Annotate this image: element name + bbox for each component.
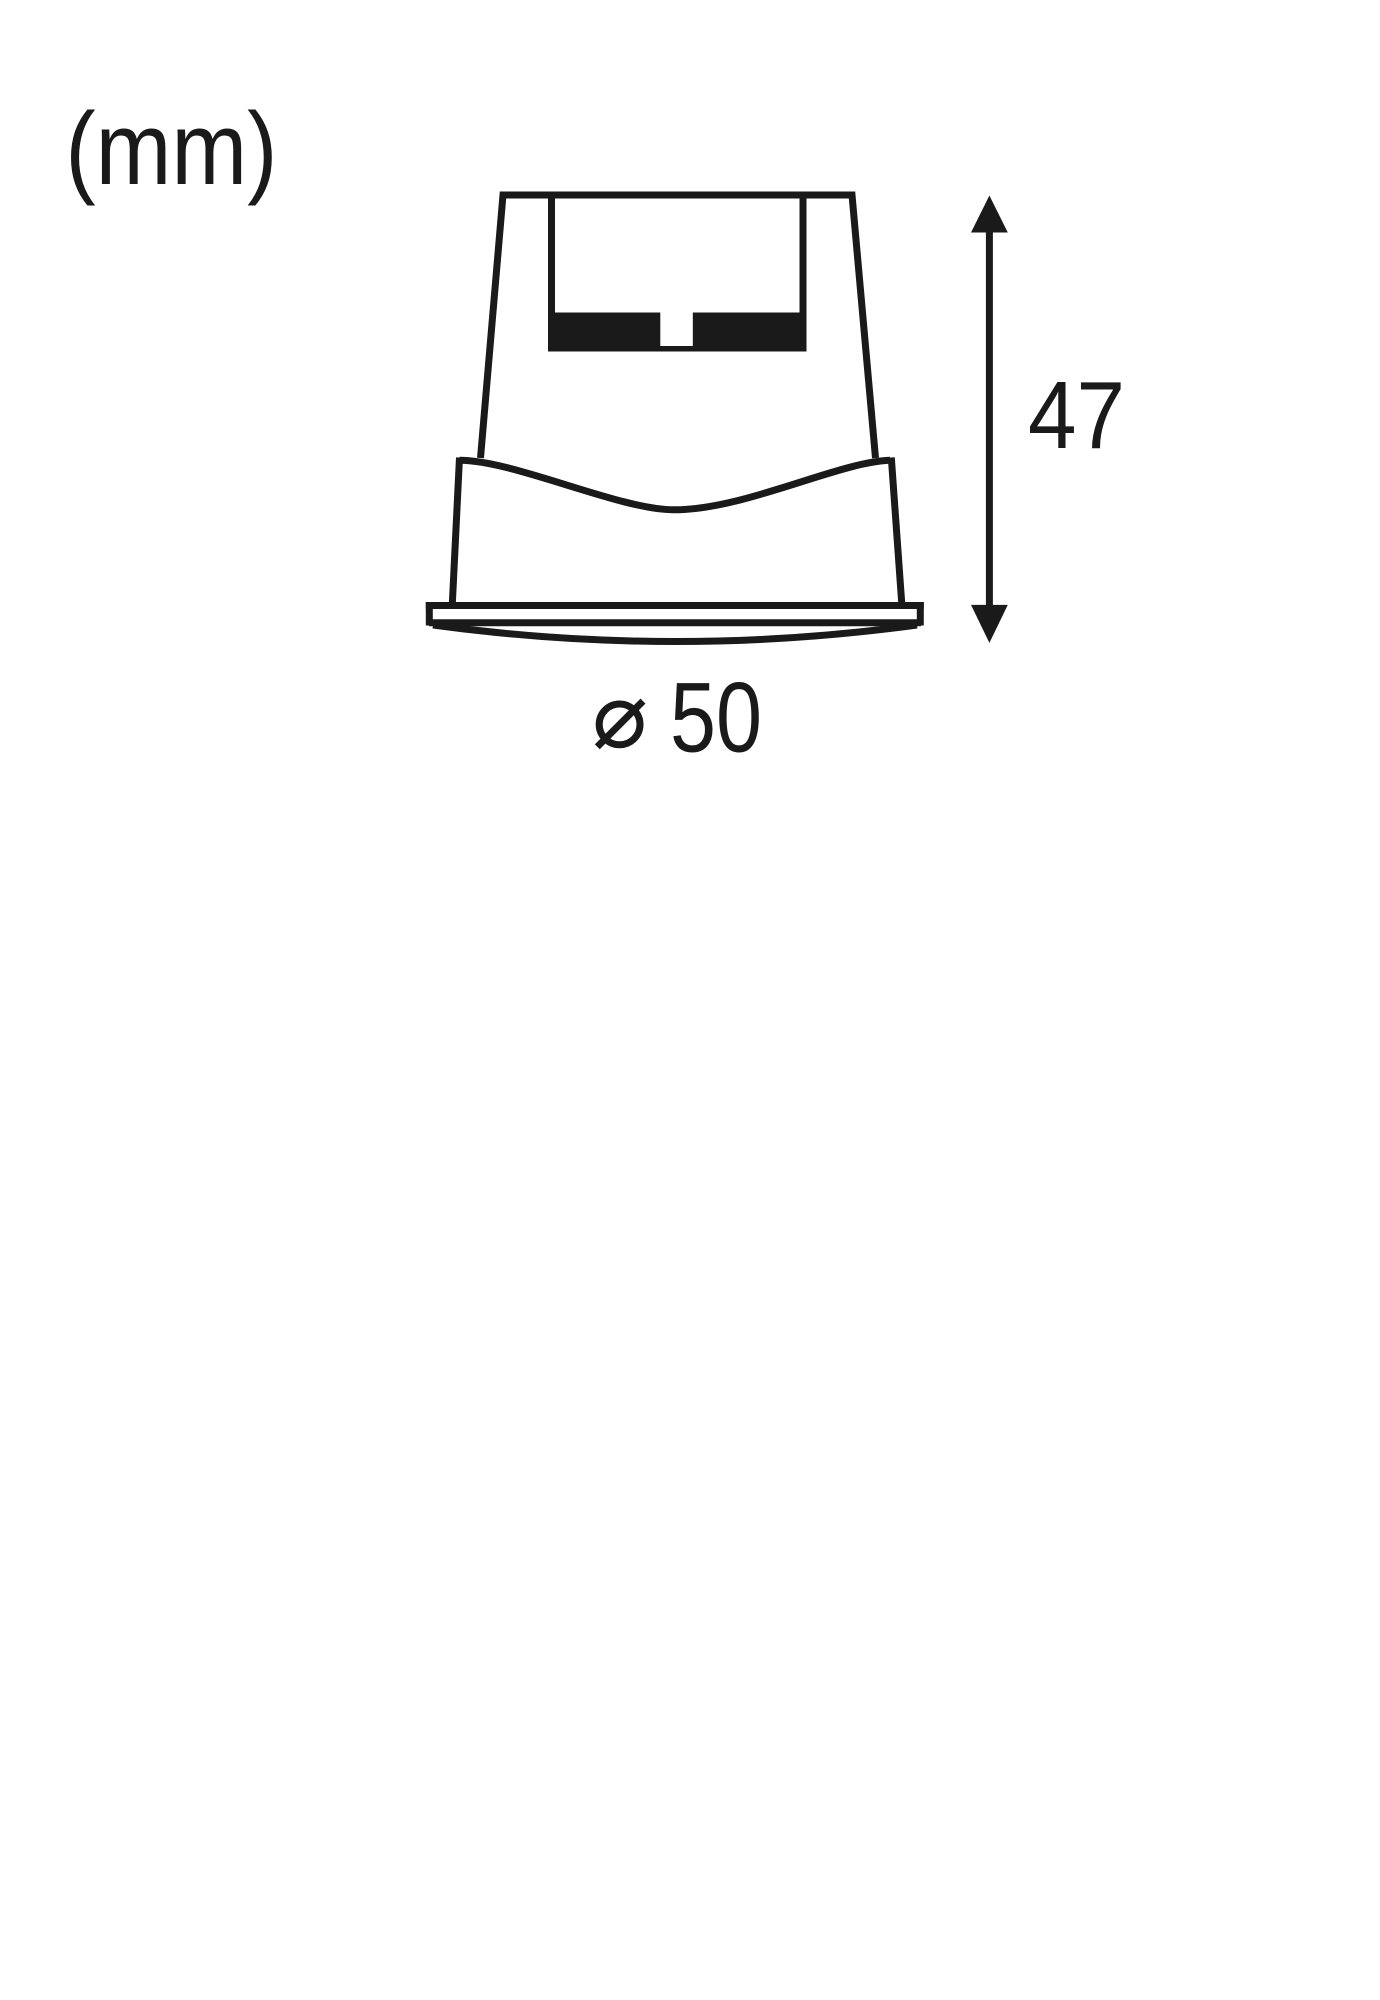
svg-text:50: 50 [670,662,762,773]
svg-text:(mm): (mm) [65,91,277,206]
svg-text:47: 47 [1028,362,1125,469]
